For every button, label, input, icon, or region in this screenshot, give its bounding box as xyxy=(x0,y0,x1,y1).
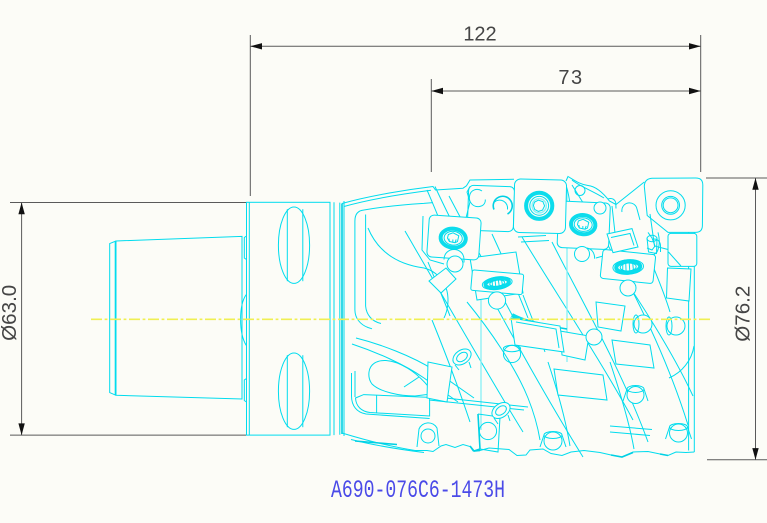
svg-text:A690-076C6-1473H: A690-076C6-1473H xyxy=(331,476,505,505)
svg-text:122: 122 xyxy=(463,23,496,45)
svg-text:Ø63.0: Ø63.0 xyxy=(0,285,21,341)
svg-text:73: 73 xyxy=(558,67,583,89)
svg-text:Ø76.2: Ø76.2 xyxy=(732,286,755,342)
